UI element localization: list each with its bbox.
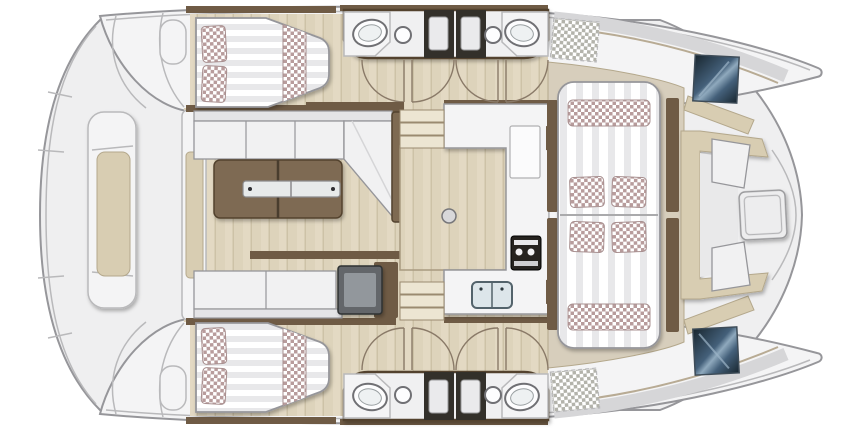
deck-grate-patch [550, 18, 599, 62]
coffee-table [214, 160, 342, 218]
appliance-lid [344, 273, 376, 307]
round-basin [485, 27, 501, 43]
bed-runner [283, 323, 306, 411]
bench-seats [194, 271, 336, 309]
cooktop-vent [514, 240, 538, 245]
cockpit-seatback [712, 139, 750, 188]
cutting-board [510, 126, 540, 178]
port-companionway-stairs [400, 110, 444, 148]
cooktop-panel [511, 236, 541, 270]
round-basin [485, 387, 501, 403]
shower-column [461, 17, 480, 50]
bed-pillow [201, 327, 227, 364]
cooktop-slider [514, 261, 538, 266]
port-cabin-outer-wall [186, 6, 336, 13]
sink-drain [500, 287, 503, 290]
lounge-side-table [666, 218, 679, 332]
sunpad-pillow [611, 221, 646, 252]
salon-starboard-bulkhead-segment [444, 317, 548, 323]
cockpit-seatback [712, 242, 750, 291]
starboard-companionway-stairs [400, 282, 444, 320]
shower-column [429, 380, 448, 413]
cooktop-knob [528, 249, 535, 256]
double-sink [472, 282, 512, 308]
starboard-transom-pad [160, 366, 186, 410]
bench-backrest [194, 309, 342, 318]
aft-bench [88, 112, 136, 308]
lounge-side-table [666, 98, 679, 212]
sink-drain [479, 287, 482, 290]
starboard-bow-hatch [693, 327, 739, 375]
bed-pillow [201, 65, 227, 102]
salon-aft-wall-cushion [186, 152, 203, 278]
round-basin [395, 387, 411, 403]
cooktop-knob [516, 249, 523, 256]
sunpad-pillow [611, 176, 646, 207]
foredeck-lounge [547, 82, 679, 348]
sofa-backrest [194, 111, 392, 121]
bed-pillow [201, 367, 227, 404]
sofa-seats [194, 121, 344, 159]
port-transom-pad [160, 20, 186, 64]
sunpad-bolster [568, 304, 650, 330]
shower-column [429, 17, 448, 50]
inlay-latch [248, 187, 252, 191]
port-bow-hatch [693, 55, 739, 103]
lounge-side-table [547, 218, 558, 330]
aft-bench-cushion [97, 152, 130, 276]
lounge-side-table [547, 100, 558, 212]
bed-pillow [201, 25, 227, 62]
shower-column [461, 380, 480, 413]
salon-door-track [250, 251, 420, 259]
sunpad-bolster [568, 100, 650, 126]
inlay-latch [331, 187, 335, 191]
sunpad-pillow [569, 221, 604, 252]
starboard-cabin-outer-wall [186, 417, 336, 424]
deck-grate-patch [550, 368, 599, 412]
bed-runner [283, 19, 306, 107]
salon-bench [194, 262, 398, 318]
island-drain [442, 209, 456, 223]
floorplan-canvas [0, 0, 859, 430]
sunpad-pillow [569, 176, 604, 207]
catamaran-floorplan [0, 0, 859, 430]
round-basin [395, 27, 411, 43]
cockpit-table [739, 190, 787, 240]
galley-island [400, 146, 508, 270]
